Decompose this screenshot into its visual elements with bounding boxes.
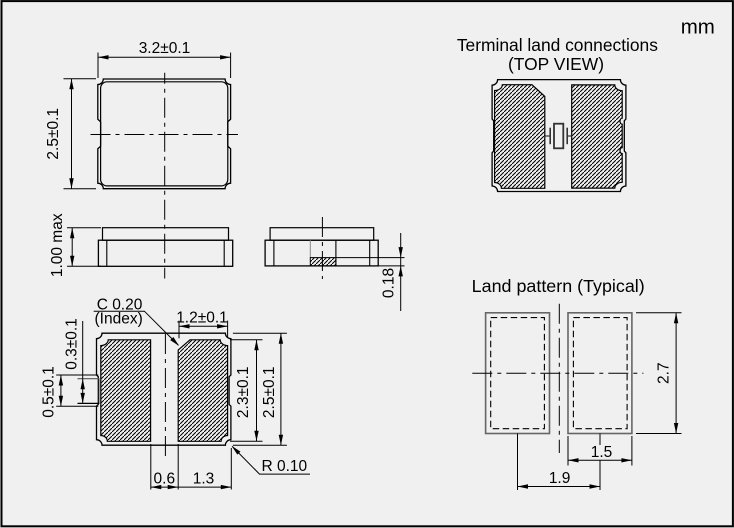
- svg-text:3.2±0.1: 3.2±0.1: [139, 40, 191, 57]
- svg-text:1.2±0.1: 1.2±0.1: [176, 310, 228, 327]
- svg-text:1.5: 1.5: [591, 444, 613, 461]
- svg-text:1.9: 1.9: [549, 470, 571, 487]
- svg-text:Terminal land connections: Terminal land connections: [457, 35, 658, 55]
- svg-text:Land pattern (Typical): Land pattern (Typical): [472, 276, 645, 296]
- svg-text:R 0.10: R 0.10: [262, 458, 308, 475]
- svg-text:(Index): (Index): [95, 311, 143, 328]
- svg-text:2.5±0.1: 2.5±0.1: [45, 108, 62, 160]
- svg-text:0.5±0.1: 0.5±0.1: [40, 366, 57, 418]
- svg-text:0.3±0.1: 0.3±0.1: [63, 318, 80, 370]
- svg-text:0.6: 0.6: [154, 470, 176, 487]
- svg-text:2.7: 2.7: [656, 362, 673, 384]
- svg-text:2.5±0.1: 2.5±0.1: [261, 366, 278, 418]
- svg-text:2.3±0.1: 2.3±0.1: [235, 366, 252, 418]
- svg-text:1.00 max: 1.00 max: [49, 213, 66, 277]
- svg-text:1.3: 1.3: [193, 470, 215, 487]
- svg-text:mm: mm: [681, 16, 715, 39]
- svg-text:0.18: 0.18: [380, 268, 397, 298]
- svg-text:(TOP VIEW): (TOP VIEW): [508, 54, 604, 74]
